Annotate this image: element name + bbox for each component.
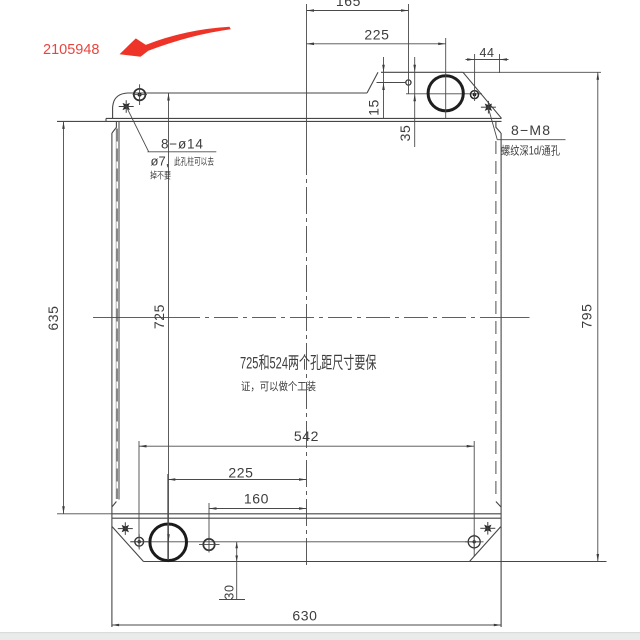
svg-text:795: 795 — [579, 303, 595, 328]
svg-text:35: 35 — [397, 125, 413, 142]
svg-text:30: 30 — [223, 584, 237, 599]
svg-text:8−M8: 8−M8 — [511, 122, 551, 138]
svg-text:225: 225 — [228, 465, 253, 481]
svg-text:44: 44 — [479, 46, 494, 60]
svg-text:2105948: 2105948 — [43, 42, 99, 58]
svg-text:542: 542 — [294, 428, 319, 444]
svg-text:掉不要: 掉不要 — [150, 170, 171, 181]
svg-text:160: 160 — [244, 491, 269, 507]
svg-text:165: 165 — [336, 0, 361, 9]
svg-text:此孔柱可以去: 此孔柱可以去 — [174, 156, 214, 168]
svg-text:螺纹深1d/通孔: 螺纹深1d/通孔 — [501, 144, 560, 158]
svg-text:635: 635 — [45, 305, 61, 330]
svg-text:8−ø14: 8−ø14 — [161, 137, 204, 152]
svg-text:证，可以做个工装: 证，可以做个工装 — [241, 379, 316, 393]
svg-text:225: 225 — [364, 27, 389, 43]
svg-text:630: 630 — [292, 608, 317, 624]
svg-text:725和524两个孔距尺寸要保: 725和524两个孔距尺寸要保 — [240, 354, 377, 373]
svg-text:725: 725 — [151, 304, 167, 329]
svg-text:15: 15 — [366, 99, 382, 116]
svg-text:ø7,: ø7, — [151, 154, 170, 169]
